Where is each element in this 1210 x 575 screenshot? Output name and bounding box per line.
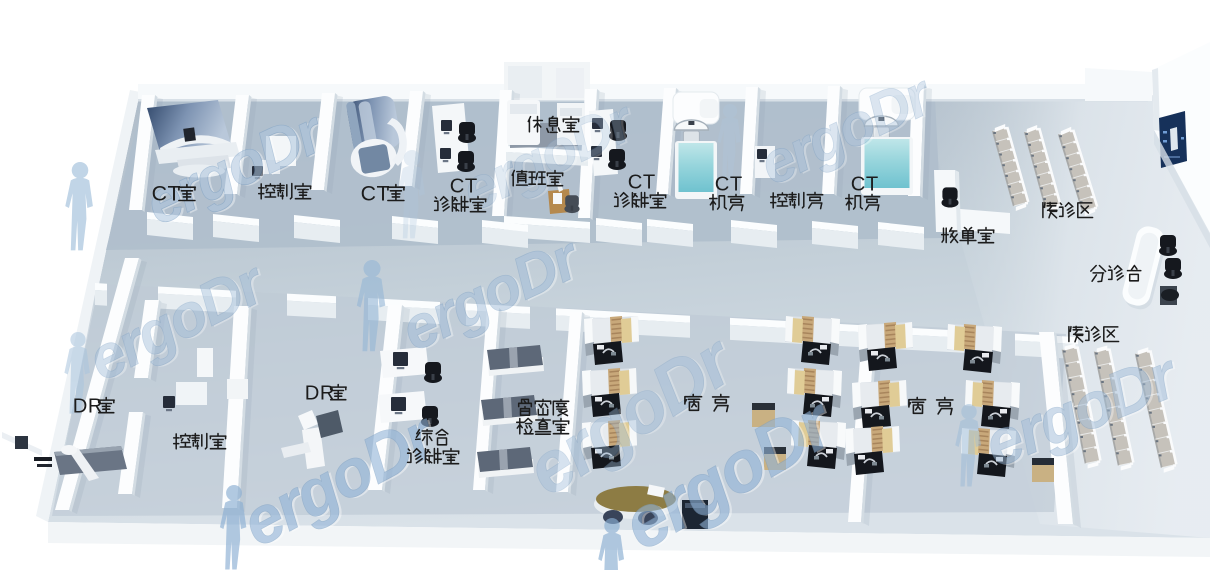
svg-text:CT: CT	[628, 172, 656, 194]
svg-text:DR: DR	[73, 396, 103, 418]
svg-text:CT: CT	[361, 181, 390, 205]
svg-text:CT: CT	[851, 174, 879, 196]
svg-text:CT: CT	[715, 174, 743, 196]
svg-text:CT: CT	[152, 181, 181, 205]
svg-text:DR: DR	[305, 383, 335, 405]
svg-text:CT: CT	[450, 176, 478, 198]
